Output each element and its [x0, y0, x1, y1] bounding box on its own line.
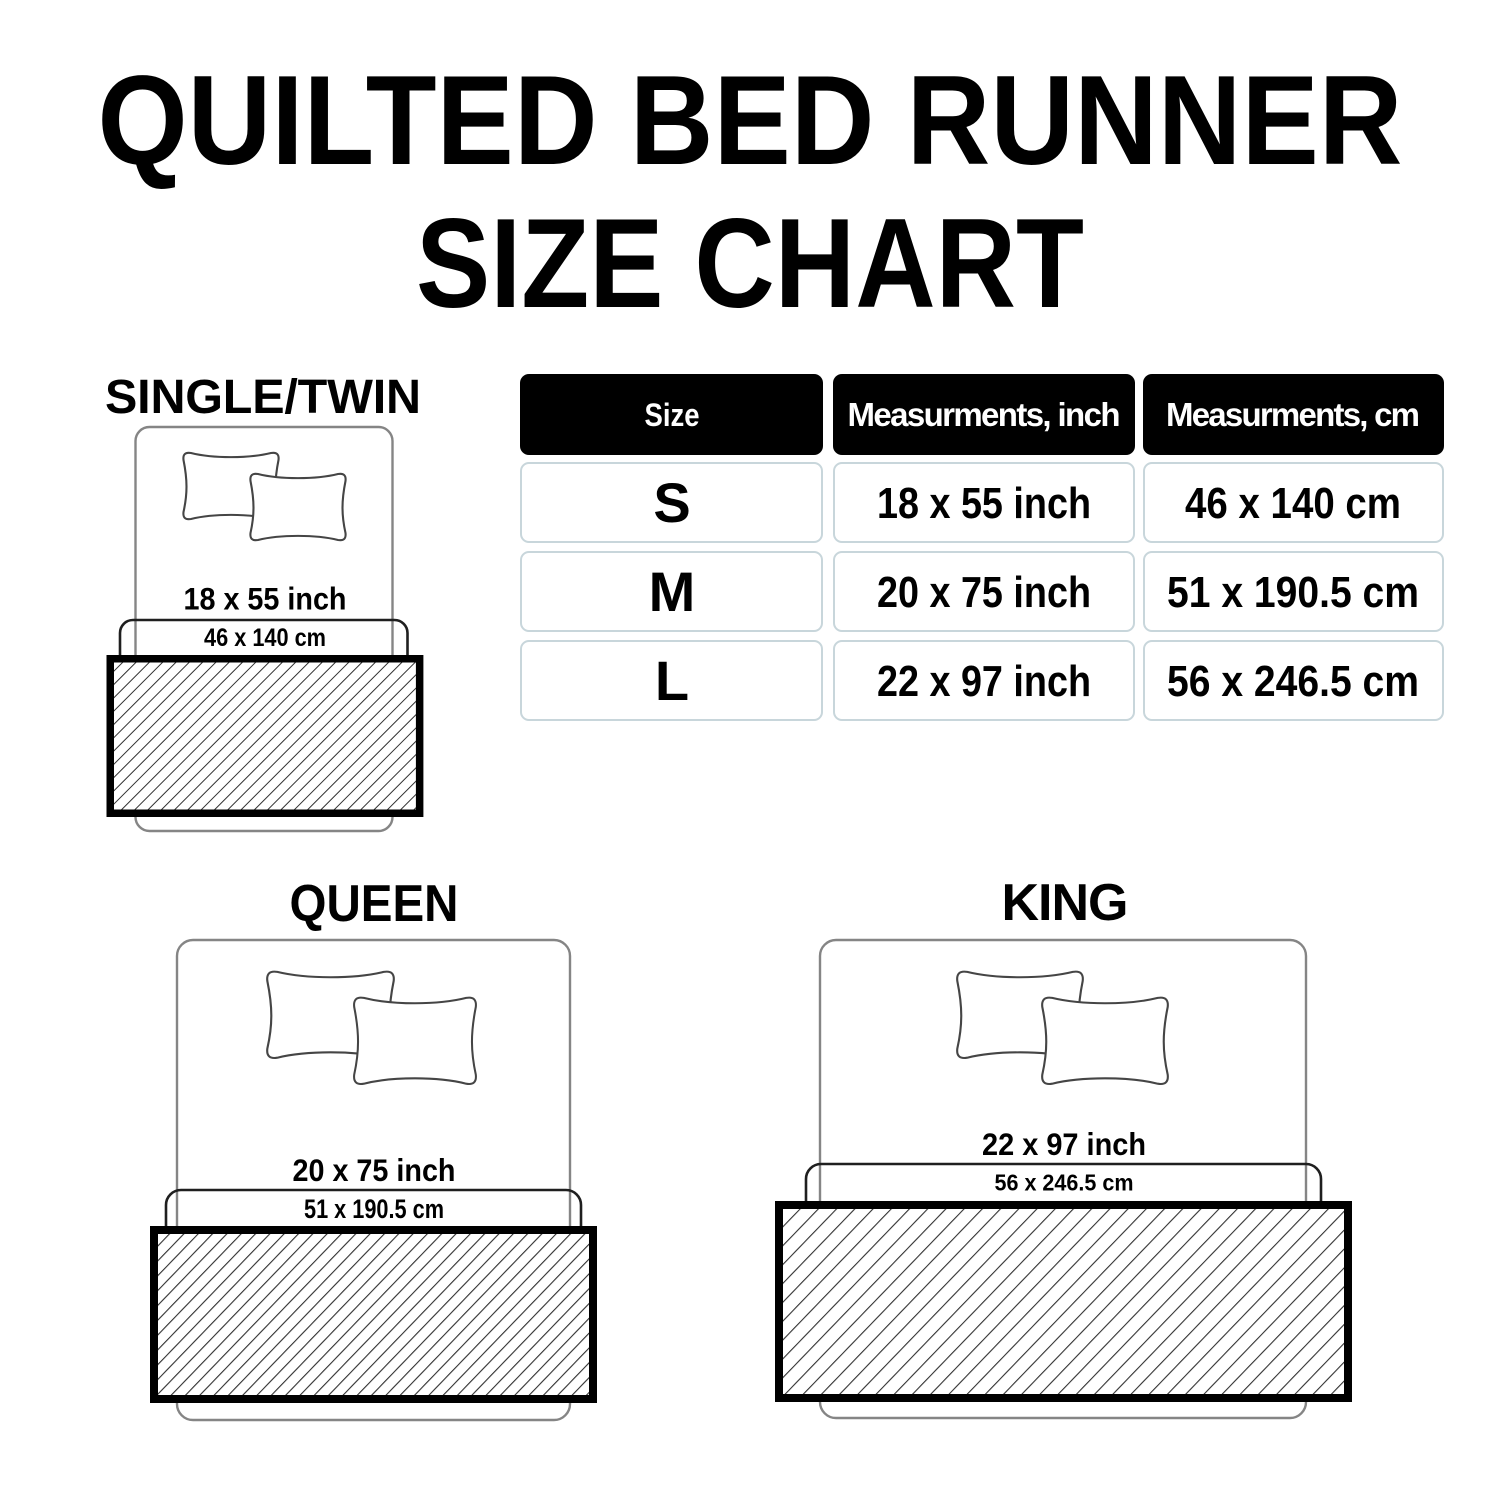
- svg-text:20 x 75 inch: 20 x 75 inch: [293, 1152, 456, 1188]
- svg-text:22 x 97 inch: 22 x 97 inch: [982, 1126, 1146, 1162]
- svg-text:S: S: [653, 471, 690, 534]
- svg-text:46 x 140 cm: 46 x 140 cm: [204, 624, 326, 652]
- svg-text:51 x 190.5 cm: 51 x 190.5 cm: [304, 1194, 444, 1224]
- svg-text:20 x 75 inch: 20 x 75 inch: [877, 568, 1091, 617]
- svg-text:SINGLE/TWIN: SINGLE/TWIN: [105, 370, 421, 424]
- svg-text:Size: Size: [645, 397, 700, 433]
- svg-text:QUEEN: QUEEN: [290, 875, 459, 933]
- svg-text:M: M: [649, 560, 696, 623]
- svg-text:L: L: [655, 649, 689, 712]
- svg-text:18 x 55 inch: 18 x 55 inch: [877, 479, 1091, 528]
- svg-text:Measurments, inch: Measurments, inch: [848, 396, 1121, 433]
- svg-text:46 x 140 cm: 46 x 140 cm: [1185, 479, 1401, 528]
- svg-text:22 x 97 inch: 22 x 97 inch: [877, 657, 1091, 706]
- svg-text:SIZE CHART: SIZE CHART: [416, 192, 1084, 334]
- svg-text:Measurments, cm: Measurments, cm: [1166, 396, 1420, 433]
- svg-text:QUILTED BED RUNNER: QUILTED BED RUNNER: [98, 49, 1403, 191]
- svg-text:56 x 246.5 cm: 56 x 246.5 cm: [995, 1170, 1134, 1196]
- svg-text:KING: KING: [1002, 874, 1129, 932]
- svg-text:18 x 55 inch: 18 x 55 inch: [184, 581, 347, 617]
- svg-text:56 x 246.5 cm: 56 x 246.5 cm: [1167, 657, 1419, 706]
- svg-text:51 x 190.5 cm: 51 x 190.5 cm: [1167, 568, 1419, 617]
